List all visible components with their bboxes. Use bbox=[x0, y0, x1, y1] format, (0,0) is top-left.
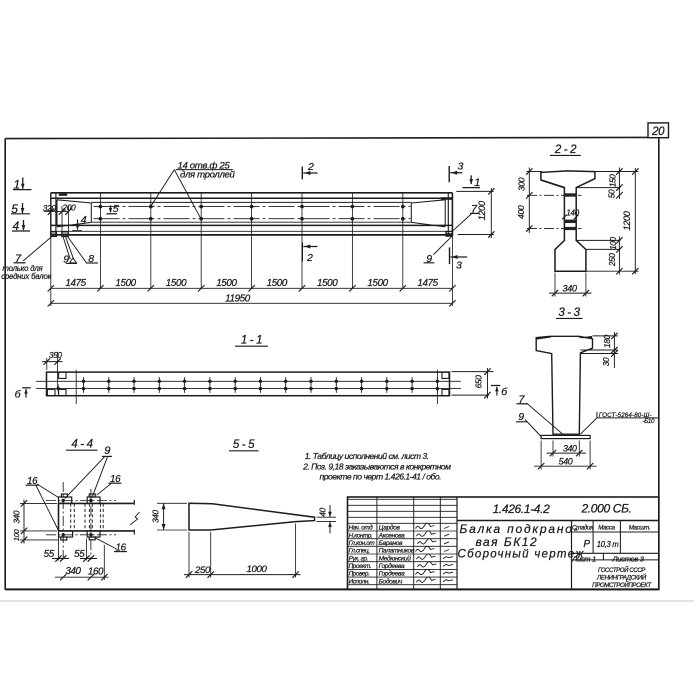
svg-text:для троллей: для троллей bbox=[180, 170, 236, 181]
svg-text:Рук. гр.: Рук. гр. bbox=[349, 555, 368, 562]
svg-text:-Б10: -Б10 bbox=[643, 418, 655, 425]
svg-text:Исполн.: Исполн. bbox=[349, 578, 370, 585]
svg-text:4 - 4: 4 - 4 bbox=[71, 438, 92, 450]
svg-text:Гл.спец.: Гл.спец. bbox=[349, 548, 370, 555]
svg-text:3: 3 bbox=[456, 260, 462, 272]
svg-text:100: 100 bbox=[12, 528, 21, 541]
svg-text:Гордеева: Гордеева bbox=[379, 570, 405, 578]
svg-text:Гл.кон.от: Гл.кон.от bbox=[349, 540, 375, 547]
svg-text:Стадия: Стадия bbox=[572, 525, 594, 532]
svg-text:2: 2 bbox=[307, 161, 314, 173]
svg-text:340: 340 bbox=[151, 510, 160, 523]
svg-text:Медюнский: Медюнский bbox=[379, 554, 412, 562]
svg-text:3: 3 bbox=[458, 160, 464, 172]
svg-text:5 - 5: 5 - 5 bbox=[233, 439, 255, 451]
svg-text:вая БК12: вая БК12 bbox=[476, 535, 539, 549]
svg-text:Цардов: Цардов bbox=[379, 524, 401, 532]
svg-text:1 - 1: 1 - 1 bbox=[241, 334, 262, 346]
svg-text:150: 150 bbox=[608, 174, 617, 187]
svg-text:30: 30 bbox=[602, 357, 611, 366]
svg-text:180: 180 bbox=[603, 334, 612, 347]
svg-text:340: 340 bbox=[65, 566, 81, 577]
svg-text:1500: 1500 bbox=[267, 278, 288, 289]
svg-text:1200: 1200 bbox=[622, 210, 632, 230]
svg-text:1475: 1475 bbox=[65, 278, 86, 289]
svg-text:проекте по черт 1.426.1-41 / о: проекте по черт 1.426.1-41 / обо. bbox=[320, 472, 442, 482]
svg-text:20: 20 bbox=[651, 126, 665, 138]
svg-text:1500: 1500 bbox=[317, 278, 338, 289]
svg-text:55: 55 bbox=[74, 549, 85, 560]
svg-text:Лист 1: Лист 1 bbox=[571, 554, 596, 563]
svg-text:Нач. отд: Нач. отд bbox=[349, 524, 374, 532]
svg-text:средних балок: средних балок bbox=[1, 272, 51, 281]
svg-text:Н.контр.: Н.контр. bbox=[349, 532, 373, 539]
svg-text:55: 55 bbox=[44, 549, 55, 560]
svg-text:250: 250 bbox=[194, 565, 211, 576]
svg-text:1.426.1-4.2: 1.426.1-4.2 bbox=[493, 502, 551, 516]
svg-text:Провер.: Провер. bbox=[349, 571, 370, 578]
svg-text:1200: 1200 bbox=[477, 200, 487, 220]
svg-text:Баранов: Баранов bbox=[379, 540, 403, 547]
svg-text:4: 4 bbox=[81, 214, 87, 226]
svg-text:540: 540 bbox=[559, 457, 573, 467]
svg-text:Палатников: Палатников bbox=[379, 548, 415, 555]
svg-text:Сборочный чертеж: Сборочный чертеж bbox=[458, 548, 585, 560]
svg-text:650: 650 bbox=[474, 375, 484, 389]
svg-text:1500: 1500 bbox=[115, 278, 136, 289]
svg-text:1500: 1500 bbox=[367, 278, 388, 289]
svg-text:50: 50 bbox=[608, 189, 617, 198]
svg-text:ПРОМСТРОЙПРОЕКТ: ПРОМСТРОЙПРОЕКТ bbox=[592, 581, 652, 589]
svg-text:Р: Р bbox=[583, 539, 590, 550]
svg-text:340: 340 bbox=[562, 283, 578, 293]
svg-text:1500: 1500 bbox=[166, 278, 187, 289]
svg-text:Гордеева: Гордеева bbox=[379, 562, 405, 570]
svg-text:1. Таблицу исполнений см. лис: 1. Таблицу исполнений см. лист 3. bbox=[305, 451, 429, 461]
svg-text:100: 100 bbox=[609, 237, 618, 250]
svg-text:5: 5 bbox=[113, 203, 119, 215]
svg-text:1475: 1475 bbox=[417, 278, 438, 289]
svg-text:9: 9 bbox=[104, 445, 110, 457]
svg-text:9: 9 bbox=[518, 411, 524, 423]
svg-text:1000: 1000 bbox=[247, 564, 268, 575]
svg-text:340: 340 bbox=[13, 510, 22, 523]
svg-text:10,3 т: 10,3 т bbox=[597, 540, 620, 549]
svg-text:1500: 1500 bbox=[216, 278, 237, 289]
svg-text:Бодович: Бодович bbox=[379, 577, 403, 585]
svg-text:Проект.: Проект. bbox=[349, 563, 372, 570]
svg-text:Листов 3: Листов 3 bbox=[611, 554, 644, 563]
svg-text:2: 2 bbox=[306, 252, 313, 264]
svg-text:350: 350 bbox=[49, 351, 62, 360]
svg-text:11950: 11950 bbox=[225, 293, 251, 304]
svg-text:ЛЕНИНГРАДСКИЙ: ЛЕНИНГРАДСКИЙ bbox=[596, 573, 647, 581]
svg-text:400: 400 bbox=[516, 205, 526, 219]
svg-text:250: 250 bbox=[608, 253, 617, 267]
svg-text:2 - 2: 2 - 2 bbox=[554, 144, 577, 156]
svg-text:Масса: Масса bbox=[598, 525, 615, 532]
svg-text:300: 300 bbox=[516, 177, 526, 191]
svg-text:40: 40 bbox=[319, 507, 328, 516]
svg-text:2.000 СБ.: 2.000 СБ. bbox=[580, 501, 631, 515]
svg-text:160: 160 bbox=[88, 567, 104, 578]
svg-text:340: 340 bbox=[563, 443, 577, 453]
svg-text:ГОССТРОЙ СССР: ГОССТРОЙ СССР bbox=[598, 566, 645, 574]
svg-text:Аксенова: Аксенова bbox=[378, 532, 406, 539]
svg-text:3 - 3: 3 - 3 bbox=[558, 307, 580, 319]
svg-text:Масшт.: Масшт. bbox=[629, 525, 651, 532]
svg-text:2. Поз. 9,18 заказываются в ко: 2. Поз. 9,18 заказываются в конкретном bbox=[302, 461, 451, 471]
